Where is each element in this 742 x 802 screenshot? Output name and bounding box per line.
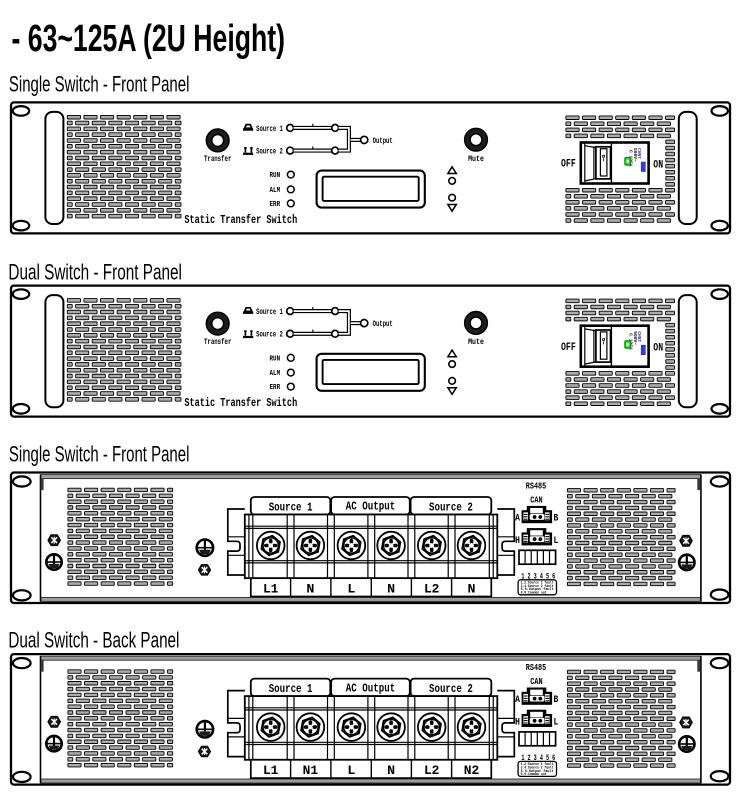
svg-text:N1: N1 — [303, 763, 319, 778]
svg-text:B: B — [554, 514, 559, 525]
svg-text:N: N — [387, 763, 395, 778]
svg-text:ALM: ALM — [270, 370, 281, 378]
svg-text:Single Switch - Front Panel: Single Switch - Front Panel — [9, 442, 190, 467]
svg-text:L: L — [347, 763, 355, 778]
svg-text:N: N — [306, 581, 314, 596]
svg-text:Source 1: Source 1 — [256, 124, 283, 134]
svg-text:Output: Output — [373, 320, 393, 329]
svg-text:Source 2: Source 2 — [256, 147, 283, 157]
svg-text:RS485: RS485 — [526, 481, 547, 492]
svg-text:Transfer: Transfer — [204, 154, 232, 164]
svg-text:ALM: ALM — [270, 187, 281, 195]
svg-text:0.0:Common out: 0.0:Common out — [521, 773, 547, 777]
svg-text:CAN: CAN — [530, 676, 542, 687]
svg-text:Dual Switch - Front Panel: Dual Switch - Front Panel — [8, 259, 182, 284]
svg-text:Static Transfer Switch: Static Transfer Switch — [184, 213, 297, 227]
svg-text:L: L — [554, 717, 559, 728]
svg-text:L2: L2 — [424, 763, 440, 778]
svg-text:H: H — [515, 717, 520, 728]
svg-text:A: A — [515, 514, 520, 525]
svg-text:OFF: OFF — [561, 159, 576, 171]
svg-text:Mute: Mute — [468, 337, 484, 347]
svg-text:AC Output: AC Output — [346, 681, 396, 695]
svg-text:ON: ON — [653, 159, 663, 171]
svg-text:AC Output: AC Output — [346, 500, 396, 514]
svg-text:Source 1: Source 1 — [256, 307, 283, 317]
svg-text:Mute: Mute — [468, 154, 484, 164]
svg-text:RS485: RS485 — [526, 662, 547, 673]
svg-text:Source 2: Source 2 — [429, 500, 473, 514]
svg-text:Dual Switch - Back Panel: Dual Switch - Back Panel — [8, 627, 179, 652]
svg-text:Transfer: Transfer — [204, 337, 232, 347]
svg-text:N: N — [468, 581, 476, 596]
svg-text:H: H — [515, 536, 520, 547]
svg-text:RUN: RUN — [270, 355, 281, 363]
svg-text:Single Switch - Front Panel: Single Switch - Front Panel — [9, 72, 190, 97]
svg-text:N2: N2 — [464, 763, 480, 778]
svg-text:Source 1: Source 1 — [269, 682, 313, 696]
svg-text:0.0:Common out: 0.0:Common out — [521, 592, 547, 596]
svg-text:L2: L2 — [424, 581, 440, 596]
svg-text:RUN: RUN — [270, 172, 281, 180]
svg-text:L1: L1 — [263, 763, 279, 778]
svg-text:L: L — [554, 536, 559, 547]
svg-text:Output: Output — [373, 137, 393, 146]
svg-text:Static Transfer Switch: Static Transfer Switch — [184, 396, 297, 410]
svg-text:A: A — [515, 695, 520, 706]
svg-text:Source 2: Source 2 — [429, 682, 473, 696]
svg-text:OFF: OFF — [561, 342, 576, 354]
svg-text:L: L — [347, 581, 355, 596]
svg-text:ERR: ERR — [270, 201, 281, 209]
svg-text:Source 1: Source 1 — [269, 500, 313, 514]
svg-text:Source 2: Source 2 — [256, 330, 283, 340]
svg-text:B: B — [554, 695, 559, 706]
svg-text:ERR: ERR — [270, 384, 281, 392]
svg-text:- 63~125A (2U Height): - 63~125A (2U Height) — [12, 18, 286, 60]
svg-text:CAN: CAN — [530, 495, 542, 506]
svg-text:N: N — [387, 581, 395, 596]
svg-text:L1: L1 — [263, 581, 279, 596]
svg-text:ON: ON — [653, 343, 663, 355]
